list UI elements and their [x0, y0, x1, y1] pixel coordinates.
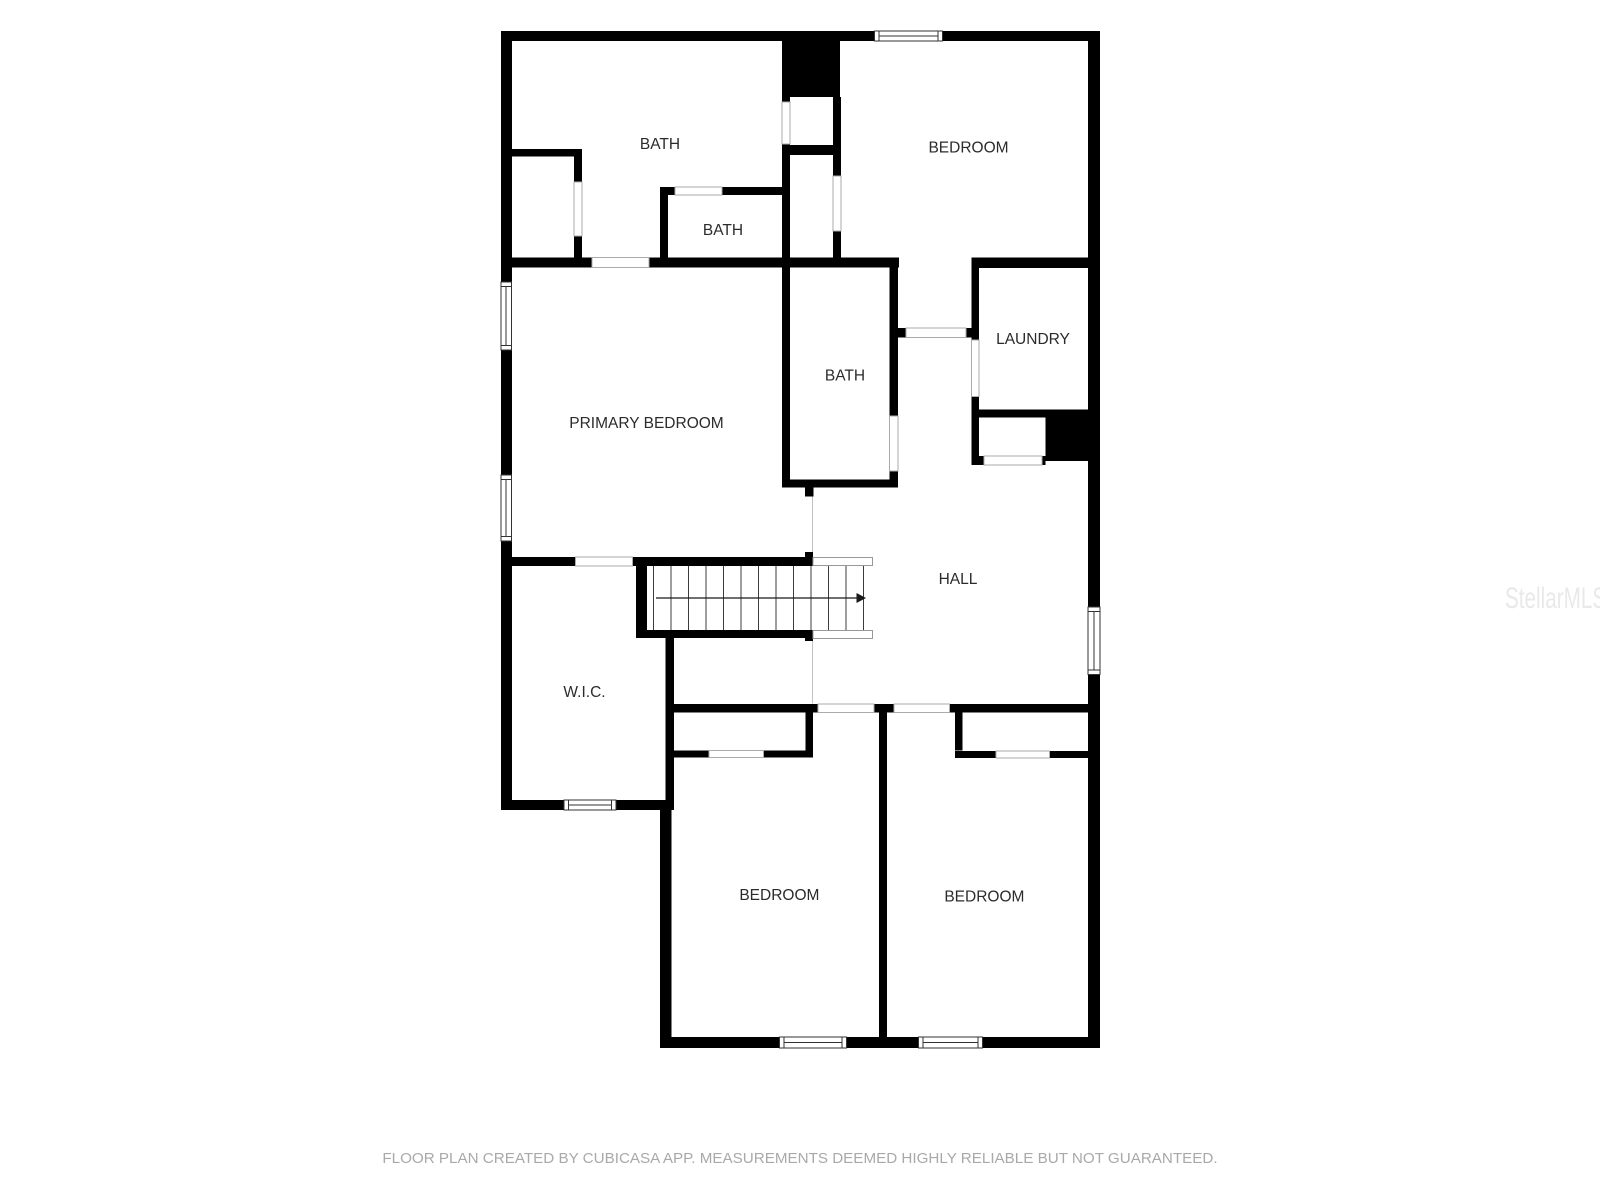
svg-text:FLOOR PLAN CREATED BY CUBICASA: FLOOR PLAN CREATED BY CUBICASA APP. MEAS…	[382, 1150, 1217, 1167]
svg-text:BEDROOM: BEDROOM	[928, 140, 1008, 157]
svg-text:PRIMARY BEDROOM: PRIMARY BEDROOM	[569, 415, 723, 432]
svg-text:LAUNDRY: LAUNDRY	[996, 331, 1070, 348]
svg-text:BATH: BATH	[703, 222, 743, 239]
svg-text:BATH: BATH	[640, 136, 680, 153]
svg-text:W.I.C.: W.I.C.	[563, 684, 605, 701]
svg-text:BATH: BATH	[825, 368, 865, 385]
svg-text:HALL: HALL	[939, 571, 978, 588]
svg-text:BEDROOM: BEDROOM	[739, 887, 819, 904]
svg-text:BEDROOM: BEDROOM	[944, 889, 1024, 906]
svg-text:StellarMLS: StellarMLS	[1505, 582, 1600, 615]
